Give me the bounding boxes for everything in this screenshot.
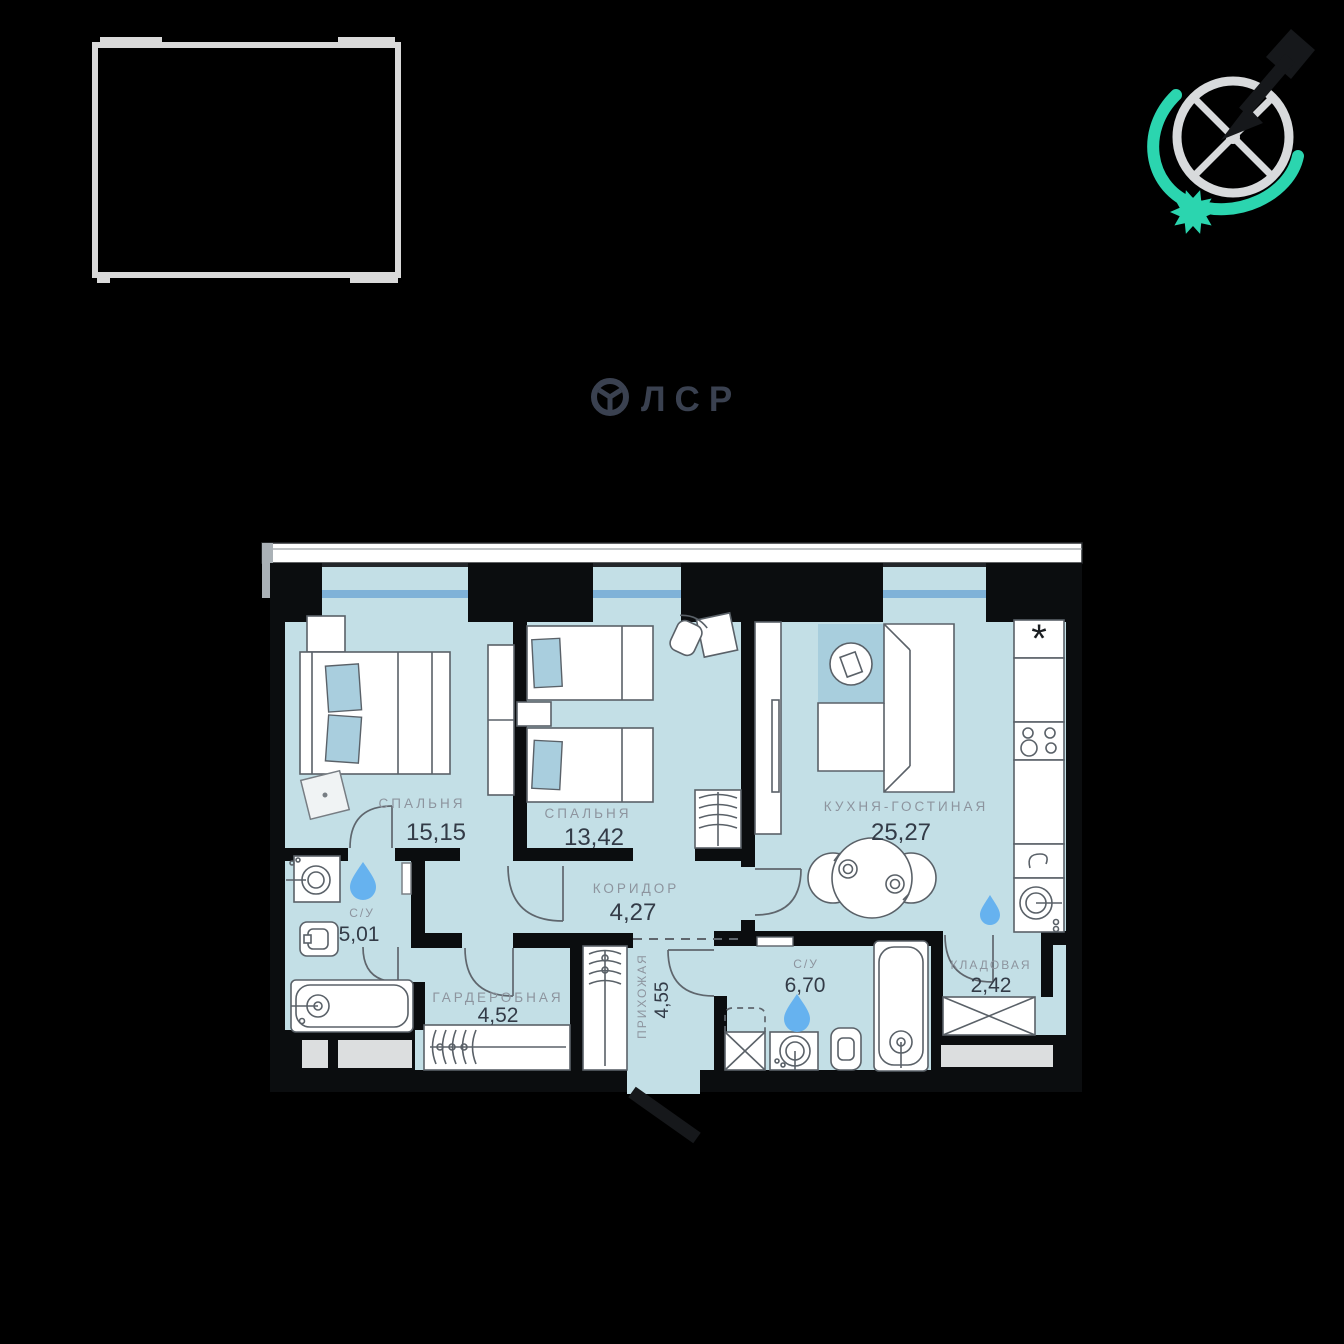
hob-unit <box>1014 844 1064 878</box>
toilet <box>300 922 338 956</box>
nightstand <box>307 616 345 652</box>
storage-shelf <box>943 997 1035 1035</box>
room-area-bedroom2: 13,42 <box>564 824 624 851</box>
pillow <box>532 638 562 687</box>
room-label-hallway: ПРИХОЖАЯ <box>635 953 649 1039</box>
room-area-kitchen: 25,27 <box>871 819 931 846</box>
floorplan-page: ЛСР <box>0 0 1344 1344</box>
cooktop <box>1014 722 1064 760</box>
window-glass <box>322 590 468 598</box>
nightstand <box>517 702 551 726</box>
window-glass <box>883 590 986 598</box>
siteplan-frame <box>95 37 398 283</box>
single-bed <box>527 728 653 802</box>
floorplan-canvas: ЛСР <box>0 0 1344 1344</box>
pillow <box>532 740 562 789</box>
entry-door-leaf <box>632 1092 697 1138</box>
room-area-storage: 2,42 <box>971 974 1012 997</box>
pillow <box>325 664 361 712</box>
room-area-bathroom2: 6,70 <box>785 974 826 997</box>
room-area-hallway: 4,55 <box>652 982 673 1019</box>
sink <box>770 1032 818 1070</box>
room-area-bedroom1: 15,15 <box>406 819 466 846</box>
counter <box>1014 760 1064 844</box>
towel-rail <box>757 937 793 946</box>
room-label-bedroom2: СПАЛЬНЯ <box>545 806 632 821</box>
room-area-bathroom1: 5,01 <box>339 923 380 946</box>
floor-plan: * <box>262 543 1082 1138</box>
room-label-bathroom1: С/У <box>349 906 375 920</box>
logo-text: ЛСР <box>641 380 741 419</box>
window-glass <box>593 590 681 598</box>
counter <box>1014 658 1064 722</box>
tv <box>772 700 779 792</box>
coffee-table <box>830 643 872 685</box>
bathroom1-door-jamb <box>402 863 411 894</box>
wardrobe-with-hangers <box>695 790 741 848</box>
wardrobe-room-fixtures <box>424 1025 570 1070</box>
room-label-kitchen: КУХНЯ-ГОСТИНАЯ <box>824 799 988 814</box>
kitchen-sink <box>1014 878 1064 932</box>
single-bed <box>527 626 653 700</box>
room-label-bathroom2: С/У <box>793 957 819 971</box>
sink <box>286 856 340 902</box>
room-label-corridor: КОРИДОР <box>593 881 680 896</box>
toilet <box>831 1028 861 1070</box>
room-area-corridor: 4,27 <box>610 899 657 926</box>
dining-table <box>832 838 912 918</box>
fridge-symbol: * <box>1031 617 1047 661</box>
pillow <box>325 715 361 763</box>
bathtub <box>291 980 413 1032</box>
room-label-wardrobe: ГАРДЕРОБНАЯ <box>432 990 563 1005</box>
developer-logo: ЛСР <box>594 380 741 419</box>
rug-small <box>301 771 349 819</box>
bathtub <box>874 941 928 1071</box>
hallway-closet <box>583 946 627 1070</box>
room-label-storage: КЛАДОВАЯ <box>950 958 1031 972</box>
kitchen-units: * <box>1014 617 1064 932</box>
room-label-bedroom1: СПАЛЬНЯ <box>379 796 466 811</box>
compass-icon <box>1153 29 1315 234</box>
wall-shelf <box>696 613 737 657</box>
room-area-wardrobe: 4,52 <box>478 1004 519 1027</box>
double-bed <box>300 652 450 774</box>
